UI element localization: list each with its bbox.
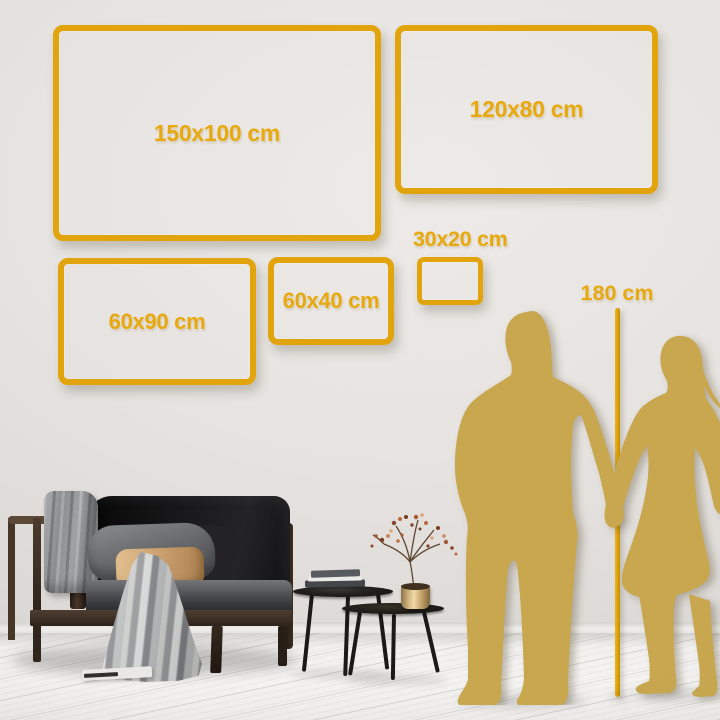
height-ruler-label: 180 cm <box>572 281 662 306</box>
table-leg <box>302 594 314 672</box>
sofa-leg <box>210 626 223 673</box>
woman-leg-front <box>636 593 677 694</box>
size-frame-60x40: 60x40 cm <box>268 257 394 345</box>
size-label-60x40: 60x40 cm <box>283 288 380 314</box>
size-frame-150x100: 150x100 cm <box>53 25 381 241</box>
size-label-120x80: 120x80 cm <box>470 96 584 123</box>
size-frame-30x20 <box>417 257 483 305</box>
sofa-leg <box>278 626 287 666</box>
man-silhouette <box>455 311 624 705</box>
sofa-frame-post <box>8 518 15 640</box>
coffee-table-set <box>288 510 474 686</box>
couple-silhouettes <box>450 305 720 705</box>
size-frame-120x80: 120x80 cm <box>395 25 658 194</box>
table-leg <box>422 612 439 673</box>
size-frame-60x90: 60x90 cm <box>58 258 256 385</box>
size-label-60x90: 60x90 cm <box>109 309 206 335</box>
ruler-floor-shadow <box>609 694 629 700</box>
size-label-30x20: 30x20 cm <box>413 227 507 252</box>
brass-vase <box>401 586 430 609</box>
size-label-150x100: 150x100 cm <box>154 120 280 147</box>
woman-leg-back <box>689 594 717 697</box>
size-guide-scene: 150x100 cm 120x80 cm 60x90 cm 60x40 cm 3… <box>0 0 720 720</box>
table-floor-shadow <box>344 676 448 684</box>
table-leg <box>348 612 361 676</box>
table-leg <box>391 614 396 680</box>
plant-branches <box>373 520 440 590</box>
sofa <box>6 487 304 685</box>
sofa-leg <box>33 626 41 662</box>
seat-cushion <box>86 580 292 612</box>
